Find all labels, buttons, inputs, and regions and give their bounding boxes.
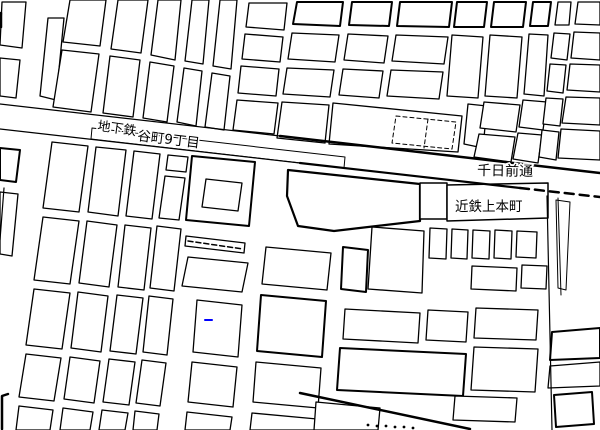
dot-mark	[385, 425, 388, 428]
dot-mark	[367, 424, 370, 427]
city-block	[133, 411, 159, 430]
city-block	[519, 100, 547, 130]
dot-mark	[394, 426, 397, 429]
city-block	[0, 148, 20, 182]
terminal-block	[287, 170, 420, 231]
city-block	[554, 392, 594, 427]
city-block	[524, 34, 548, 96]
city-block	[185, 0, 209, 64]
dot-mark	[403, 426, 406, 429]
city-block	[126, 151, 160, 219]
platform	[451, 229, 468, 259]
map-viewport: 地下鉄谷町9丁目千日前通近鉄上本町	[0, 0, 600, 430]
city-block	[103, 359, 135, 405]
city-block	[548, 362, 600, 388]
city-block	[177, 68, 202, 126]
city-block	[43, 142, 88, 212]
city-block	[337, 348, 466, 396]
city-block	[521, 265, 547, 289]
city-block	[103, 56, 140, 117]
city-block	[513, 133, 542, 163]
city-block	[485, 35, 522, 98]
city-block	[188, 362, 237, 407]
city-block	[118, 225, 151, 290]
city-block	[555, 2, 571, 25]
city-block	[233, 100, 278, 134]
kintetsu-building-tower	[420, 183, 447, 219]
city-block	[392, 35, 448, 64]
city-block	[283, 68, 334, 97]
city-block	[575, 2, 600, 25]
city-block	[471, 347, 538, 392]
city-block	[53, 50, 99, 112]
city-block	[453, 396, 517, 422]
city-block	[262, 247, 331, 290]
city-block	[530, 2, 551, 26]
city-block	[19, 354, 61, 401]
platform	[494, 230, 512, 259]
city-block	[250, 413, 317, 430]
city-block	[257, 295, 326, 357]
city-block	[16, 406, 53, 430]
city-block	[0, 2, 26, 48]
city-block	[150, 226, 181, 291]
city-block	[341, 247, 368, 292]
east-street-left	[547, 196, 552, 430]
city-block	[293, 2, 343, 26]
city-block	[471, 266, 517, 291]
city-block	[110, 295, 143, 354]
city-block	[567, 64, 600, 92]
city-block	[426, 310, 468, 342]
city-block	[166, 155, 188, 172]
city-block	[551, 33, 570, 60]
city-block	[242, 34, 283, 62]
platform	[429, 228, 447, 259]
platform	[516, 231, 537, 258]
corner-mark	[2, 394, 8, 429]
city-block	[543, 98, 563, 126]
city-block	[151, 0, 181, 60]
city-block	[185, 412, 232, 430]
city-block	[288, 33, 339, 62]
city-block	[26, 289, 70, 349]
city-block	[238, 66, 279, 96]
city-block	[88, 147, 126, 216]
city-block	[193, 300, 242, 357]
city-block	[63, 0, 106, 46]
city-block	[339, 69, 383, 98]
city-block	[550, 328, 600, 360]
city-block	[99, 410, 128, 430]
temple-block-inner	[202, 179, 242, 211]
city-block	[71, 292, 108, 352]
city-block	[60, 408, 93, 430]
city-block	[159, 176, 185, 220]
city-block	[558, 129, 600, 160]
city-block	[314, 402, 380, 430]
city-block	[79, 221, 117, 287]
city-block	[344, 34, 388, 63]
city-block	[111, 0, 148, 53]
city-block	[539, 130, 559, 160]
city-block	[143, 62, 174, 122]
city-block	[397, 2, 452, 27]
city-block	[474, 134, 515, 162]
city-block	[0, 58, 20, 98]
city-block	[136, 360, 166, 406]
dot-mark	[376, 425, 379, 428]
map-canvas: 地下鉄谷町9丁目千日前通近鉄上本町	[0, 0, 600, 430]
city-block	[562, 97, 600, 125]
label-sennichimae: 千日前通	[477, 162, 533, 180]
city-block	[143, 296, 173, 355]
city-block	[64, 357, 100, 403]
city-block	[205, 73, 230, 130]
city-block	[480, 102, 520, 132]
city-block	[368, 227, 424, 293]
city-block	[491, 2, 526, 27]
city-block	[474, 308, 538, 340]
city-block	[253, 362, 321, 408]
city-block	[213, 0, 237, 69]
city-block	[343, 309, 420, 343]
city-block	[34, 217, 79, 284]
city-block	[454, 2, 487, 27]
city-block	[349, 2, 392, 26]
dot-mark	[412, 427, 415, 430]
city-block	[547, 64, 566, 93]
city-block	[246, 3, 287, 30]
platform	[472, 230, 490, 259]
city-block	[571, 32, 600, 60]
city-block	[447, 35, 483, 98]
label-kintetsu: 近鉄上本町	[455, 199, 523, 215]
city-block	[182, 257, 248, 292]
city-block	[387, 70, 443, 99]
